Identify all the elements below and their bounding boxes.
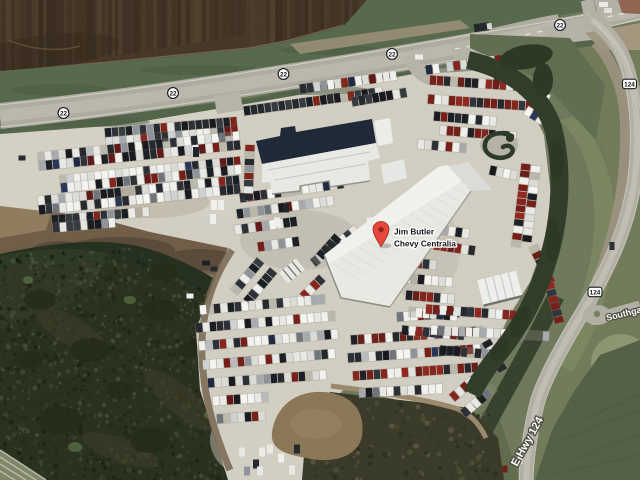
svg-text:22: 22: [280, 71, 288, 78]
svg-text:22: 22: [388, 51, 396, 58]
svg-text:124: 124: [590, 289, 601, 296]
svg-text:22: 22: [556, 22, 564, 29]
svg-text:124: 124: [624, 81, 635, 88]
svg-text:22: 22: [169, 90, 177, 97]
svg-text:22: 22: [60, 110, 68, 117]
svg-text:Jim Butler: Jim Butler: [394, 228, 435, 237]
svg-text:Chevy Centralia: Chevy Centralia: [394, 240, 456, 249]
